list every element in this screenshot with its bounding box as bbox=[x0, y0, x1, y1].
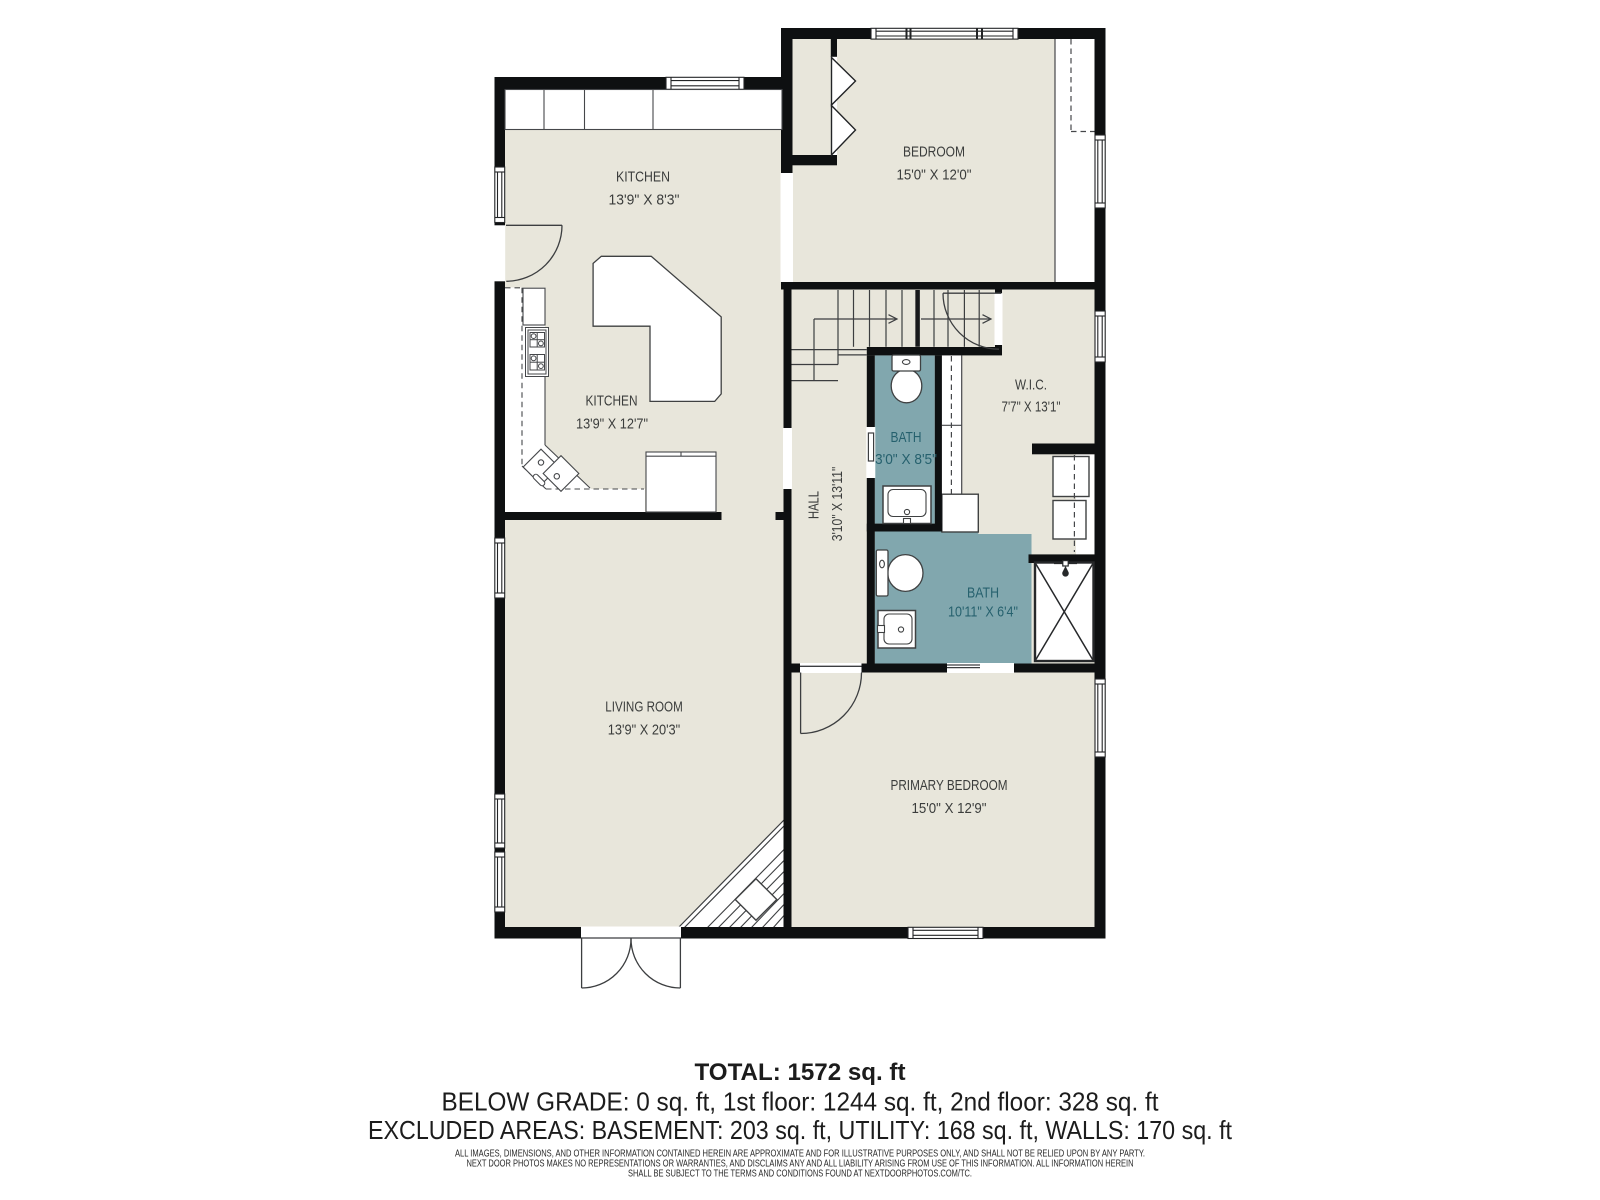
svg-text:15'0" X 12'9": 15'0" X 12'9" bbox=[912, 800, 987, 817]
svg-text:PRIMARY BEDROOM: PRIMARY BEDROOM bbox=[891, 777, 1008, 794]
svg-text:15'0" X 12'0": 15'0" X 12'0" bbox=[897, 166, 972, 183]
svg-text:W.I.C.: W.I.C. bbox=[1015, 376, 1047, 393]
svg-text:3'0" X 8'5": 3'0" X 8'5" bbox=[875, 451, 937, 468]
svg-text:13'9" X 8'3": 13'9" X 8'3" bbox=[609, 191, 680, 208]
svg-text:BEDROOM: BEDROOM bbox=[903, 143, 965, 160]
svg-text:HALL: HALL bbox=[805, 491, 822, 519]
svg-text:KITCHEN: KITCHEN bbox=[616, 168, 670, 185]
svg-text:13'9" X 12'7": 13'9" X 12'7" bbox=[576, 415, 648, 432]
svg-text:BATH: BATH bbox=[967, 584, 999, 601]
svg-text:10'11" X 6'4": 10'11" X 6'4" bbox=[948, 603, 1018, 620]
svg-text:SHALL BE SUBJECT TO THE TERMS: SHALL BE SUBJECT TO THE TERMS AND CONDIT… bbox=[628, 1168, 972, 1179]
svg-text:EXCLUDED AREAS: BASEMENT: 203: EXCLUDED AREAS: BASEMENT: 203 sq. ft, UT… bbox=[368, 1115, 1233, 1145]
svg-text:LIVING ROOM: LIVING ROOM bbox=[605, 698, 683, 715]
svg-text:BELOW GRADE: 0 sq. ft, 1st flo: BELOW GRADE: 0 sq. ft, 1st floor: 1244 s… bbox=[442, 1086, 1160, 1116]
svg-text:3'10" X 13'11": 3'10" X 13'11" bbox=[829, 467, 846, 542]
svg-text:KITCHEN: KITCHEN bbox=[586, 392, 638, 409]
svg-text:7'7" X 13'1": 7'7" X 13'1" bbox=[1002, 398, 1061, 415]
svg-text:13'9" X 20'3": 13'9" X 20'3" bbox=[608, 721, 681, 738]
svg-text:BATH: BATH bbox=[891, 429, 922, 446]
svg-text:TOTAL: 1572 sq. ft: TOTAL: 1572 sq. ft bbox=[695, 1059, 906, 1086]
